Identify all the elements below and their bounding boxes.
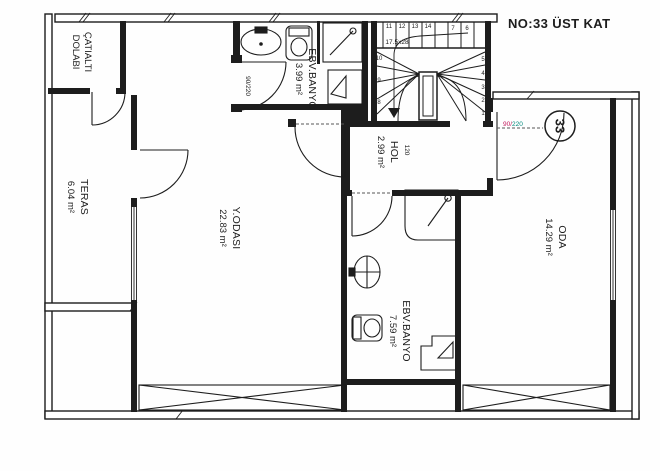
label-y-odasi: Y.ODASI 22.83 m²	[217, 207, 242, 250]
wall-oda-top	[493, 92, 639, 99]
catialti-line2: DOLABI	[70, 35, 81, 70]
door-closet	[92, 92, 125, 125]
wall-teras-right-a	[131, 95, 137, 150]
tread-3: 3	[481, 85, 485, 91]
tread-2: 2	[481, 98, 485, 104]
tread-11: 11	[386, 24, 393, 30]
floor-plan-drawing: 1 2 3 4 5 6 7 8 9 10 11 12 13 14 17.5x28	[0, 0, 660, 471]
shower-bath1	[323, 23, 362, 62]
label-catialti-dolabi: ÇATIALTI DOLABI	[70, 32, 93, 72]
label-hol-dim: 120	[403, 145, 410, 156]
y-odasi-name: Y.ODASI	[230, 207, 242, 250]
tread-7: 7	[451, 26, 455, 32]
label-door-bath1: 90/220	[244, 76, 251, 96]
floor-plan-page: 1 2 3 4 5 6 7 8 9 10 11 12 13 14 17.5x28	[0, 0, 660, 471]
ebv-banyo-ust-name: EBV.BANYO	[306, 48, 318, 110]
fixtures	[241, 23, 458, 370]
wall-teras-right-c	[131, 300, 137, 412]
label-ebv-banyo-alt: EBV.BANYO 7.59 m²	[387, 300, 412, 362]
sink-bath1	[241, 27, 281, 55]
wall-bottom	[45, 411, 639, 419]
wall-teras-right-b	[131, 198, 137, 207]
wall-right-outer	[632, 92, 639, 419]
staircase	[377, 22, 485, 121]
window-teras-wall	[132, 207, 137, 300]
interior-walls	[48, 21, 616, 412]
wall-stair-left	[371, 21, 377, 125]
unit-badge-number: 33	[553, 119, 568, 133]
wall-bath1-bottom	[233, 104, 368, 110]
tread-4: 4	[481, 71, 485, 77]
hol-dim-text: 120	[403, 145, 410, 156]
tread-12: 12	[399, 24, 406, 30]
toilet-bath2	[352, 315, 382, 341]
door-bath1-size: 90/220	[244, 76, 251, 96]
oda-area: 14.29 m²	[543, 218, 554, 256]
ebv-banyo-alt-area: 7.59 m²	[387, 315, 398, 347]
ebv-banyo-ust-area: 3.99 m²	[293, 63, 304, 95]
door-teras	[140, 150, 188, 198]
window-x-yodasi	[139, 385, 345, 410]
room-labels: ÇATIALTI DOLABI TERAS 6.04 m² EBV.BANYO …	[65, 32, 568, 362]
tread-14: 14	[425, 24, 432, 30]
wall-bath1-right	[362, 21, 368, 110]
shaft-box	[328, 70, 362, 104]
sink-bath2	[349, 256, 380, 288]
label-ebv-banyo-ust: EBV.BANYO 3.99 m²	[293, 48, 318, 110]
stair-void-inner	[423, 76, 433, 116]
stair-handrail-left	[398, 76, 419, 121]
catialti-line1: ÇATIALTI	[82, 32, 93, 72]
door-oda-size-height: 220	[512, 121, 523, 128]
wall-closet-right	[120, 21, 126, 91]
hol-name: HOL	[388, 141, 400, 163]
tread-5: 5	[481, 57, 485, 63]
wall-hol-right-a	[487, 98, 493, 112]
wall-left	[45, 14, 52, 418]
label-oda: ODA 14.29 m²	[543, 218, 568, 256]
tread-6: 6	[465, 26, 469, 32]
window-x-oda	[463, 385, 610, 410]
tread-size-label: 17.5x28	[385, 39, 409, 46]
door-bath2	[352, 193, 392, 236]
wall-teras-bottom	[45, 303, 136, 311]
door-yodasi	[295, 124, 345, 177]
bottom-windows	[139, 385, 610, 410]
wall-oda-right-b	[610, 300, 616, 412]
door-oda-size: 90/220	[503, 121, 523, 128]
jamb-yodasi-door	[288, 119, 296, 127]
tread-10: 10	[376, 56, 383, 62]
teras-name: TERAS	[78, 179, 90, 215]
tread-13: 13	[412, 24, 419, 30]
stair-left-fan	[377, 52, 419, 114]
tub-corner	[421, 336, 455, 370]
ebv-banyo-alt-name: EBV.BANYO	[400, 300, 412, 362]
teras-area: 6.04 m²	[65, 181, 76, 213]
oda-name: ODA	[556, 225, 568, 248]
hol-area: 2.99 m²	[375, 136, 386, 168]
tread-8: 8	[377, 100, 381, 106]
shower-bath2	[405, 190, 458, 240]
wall-closet-bottom-a	[48, 88, 90, 94]
plan-title: NO:33 ÜST KAT	[508, 16, 610, 31]
y-odasi-area: 22.83 m²	[217, 209, 228, 247]
door-oda-size-width: 90/	[503, 121, 512, 128]
wall-bath2-bottom	[341, 379, 461, 385]
window-oda-wall	[611, 210, 616, 300]
wall-hol-bottom-a	[341, 190, 352, 196]
label-teras: TERAS 6.04 m²	[65, 179, 90, 215]
wall-hol-top-b	[483, 121, 493, 127]
wall-hol-top-a	[345, 121, 450, 127]
stair-right-fan	[437, 52, 485, 121]
label-hol: HOL 2.99 m²	[375, 136, 400, 168]
wall-hol-bottom-b	[392, 190, 493, 196]
wall-oda-right-a	[610, 98, 616, 210]
